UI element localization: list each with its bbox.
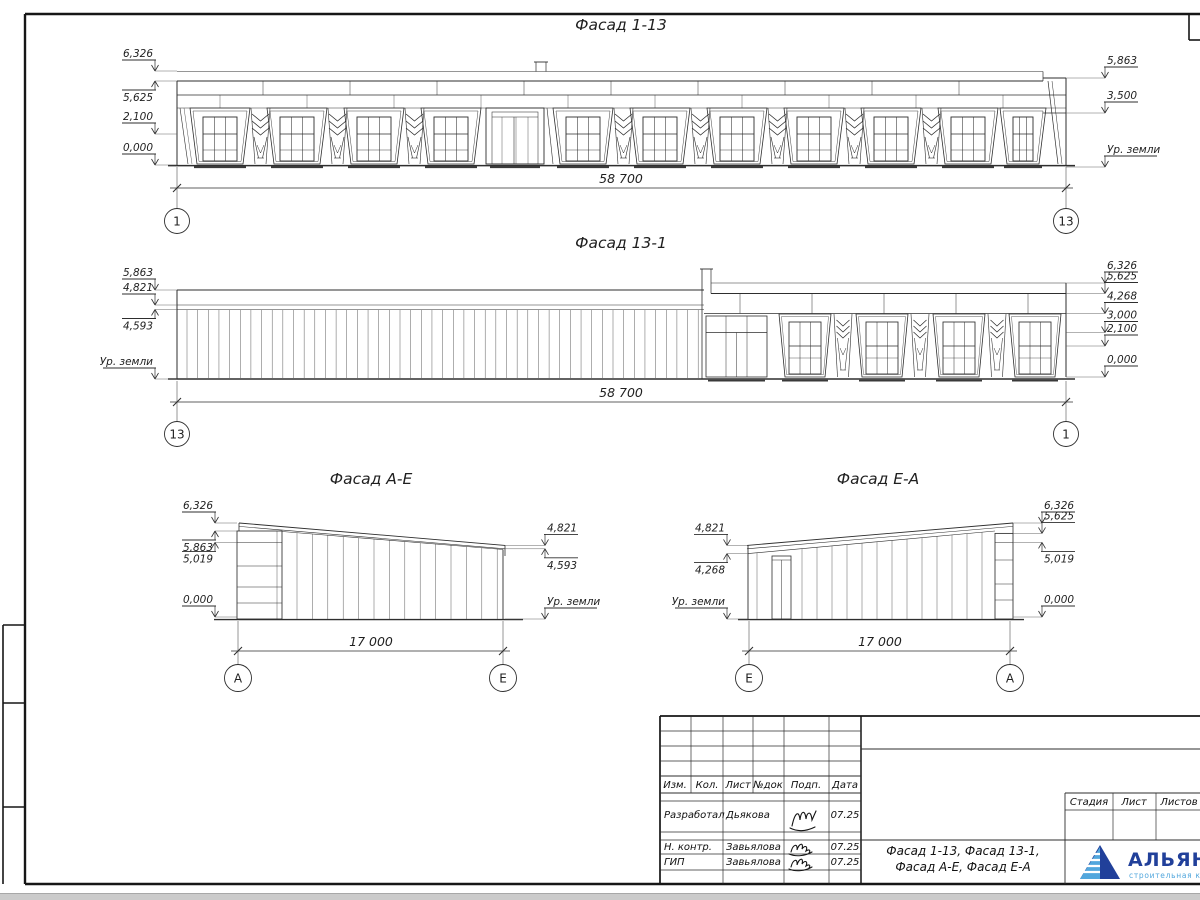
elevation-mark-value: 4,821 xyxy=(547,522,577,534)
facade-1-13 xyxy=(168,62,1075,167)
tb-header-ndok: №док xyxy=(753,780,782,792)
tb-header-list: Лист xyxy=(725,780,750,792)
elevation-mark-value: 2,100 xyxy=(123,111,153,123)
tb-stage-col: Стадия xyxy=(1070,797,1108,809)
dimension-value: 58 700 xyxy=(599,171,643,186)
elevation-mark-value: 5,019 xyxy=(183,553,213,565)
elevation-mark-value: 4,593 xyxy=(547,560,577,572)
axis-label: А xyxy=(1006,672,1015,686)
elevation-mark-value: 3,000 xyxy=(1107,310,1137,322)
facade-A-E xyxy=(214,523,523,620)
elevation-mark-value: 3,500 xyxy=(1107,90,1137,102)
tb-header-podp: Подп. xyxy=(791,780,821,792)
dimension-value: 58 700 xyxy=(599,385,643,400)
facade-13-1 xyxy=(168,269,1075,381)
elevation-mark-value: 4,268 xyxy=(1107,291,1137,303)
logo-name: АЛЬЯНС xyxy=(1128,849,1200,871)
sheet-frame xyxy=(3,14,1200,884)
elevation-mark-value: 4,821 xyxy=(123,282,153,294)
tb-name-gip: Завьялова xyxy=(726,857,781,869)
elevation-mark-value: 0,000 xyxy=(1107,354,1137,366)
tb-date-gip: 07.25 xyxy=(831,857,860,869)
doc-title-line1: Фасад 1-13, Фасад 13-1, xyxy=(886,845,1039,857)
tb-header-kol: Кол. xyxy=(696,780,719,792)
axis-label: Е xyxy=(745,672,753,686)
axis-label: 1 xyxy=(1062,428,1070,442)
doc-title-line2: Фасад А-Е, Фасад Е-А xyxy=(895,861,1030,873)
facade-title: Фасад 1-13 xyxy=(575,16,667,34)
elevation-mark-value: 4,593 xyxy=(123,321,153,333)
logo-tagline: строительная компания xyxy=(1129,871,1200,880)
elevation-mark-value: 6,326 xyxy=(123,48,153,60)
tb-name-ncontr: Завьялова xyxy=(726,842,781,854)
elevation-mark-value: 5,863 xyxy=(183,542,213,554)
elevation-mark-value: 0,000 xyxy=(123,142,153,154)
drawing-sheet: Фасад 1-1358 7001136,3265,6252,1000,0005… xyxy=(0,0,1200,900)
axis-label: 13 xyxy=(1058,215,1073,229)
elevation-mark-value: 5,019 xyxy=(1044,553,1074,565)
dimension-value: 17 000 xyxy=(858,634,902,649)
elevation-mark-value: 5,625 xyxy=(123,92,153,104)
tb-sheets-col: Листов xyxy=(1160,797,1197,809)
elevation-mark-value: 0,000 xyxy=(183,594,213,606)
elevation-mark-value: Ур. земли xyxy=(1107,144,1160,156)
elevation-mark-value: 4,268 xyxy=(695,565,725,577)
axis-label: 13 xyxy=(169,428,184,442)
elevation-mark-value: 6,326 xyxy=(183,500,213,512)
elevation-mark-value: 4,821 xyxy=(695,522,725,534)
facade-title: Фасад А-Е xyxy=(330,470,413,488)
signatures xyxy=(789,811,816,871)
tb-sheet-col: Лист xyxy=(1121,797,1146,809)
elevation-mark-value: 0,000 xyxy=(1044,594,1074,606)
facade-title: Фасад Е-А xyxy=(837,470,920,488)
tb-header-data: Дата xyxy=(832,780,858,792)
elevation-mark-value: 5,863 xyxy=(1107,55,1137,67)
axis-label: 1 xyxy=(173,215,181,229)
elevation-mark-value: 5,625 xyxy=(1044,510,1074,522)
axis-label: А xyxy=(234,672,243,686)
elevation-mark-value: 5,863 xyxy=(123,267,153,279)
elevation-mark-value: Ур. земли xyxy=(547,596,600,608)
tb-name-developer: Дьякова xyxy=(726,810,770,822)
facade-E-A xyxy=(738,523,1024,620)
tb-header-izm: Изм. xyxy=(663,780,687,792)
tb-date-ncontr: 07.25 xyxy=(831,842,860,854)
elevation-mark-value: 2,100 xyxy=(1107,323,1137,335)
facade-title: Фасад 13-1 xyxy=(575,234,667,252)
tb-role-ncontr: Н. контр. xyxy=(664,842,712,854)
tb-role-gip: ГИП xyxy=(664,857,685,869)
dimension-value: 17 000 xyxy=(349,634,393,649)
company-logo: АЛЬЯНС строительная компания xyxy=(1076,841,1200,883)
tb-date-developer: 07.25 xyxy=(831,810,860,822)
elevation-mark-value: Ур. земли xyxy=(100,356,153,368)
elevation-mark-value: 5,625 xyxy=(1107,271,1137,283)
facade-drawings-canvas: Фасад 1-1358 7001136,3265,6252,1000,0005… xyxy=(0,0,1200,900)
page-edge-strip xyxy=(0,893,1200,900)
elevation-mark-value: Ур. земли xyxy=(672,596,725,608)
tb-role-developer: Разработал xyxy=(664,810,725,822)
axis-label: Е xyxy=(499,672,507,686)
